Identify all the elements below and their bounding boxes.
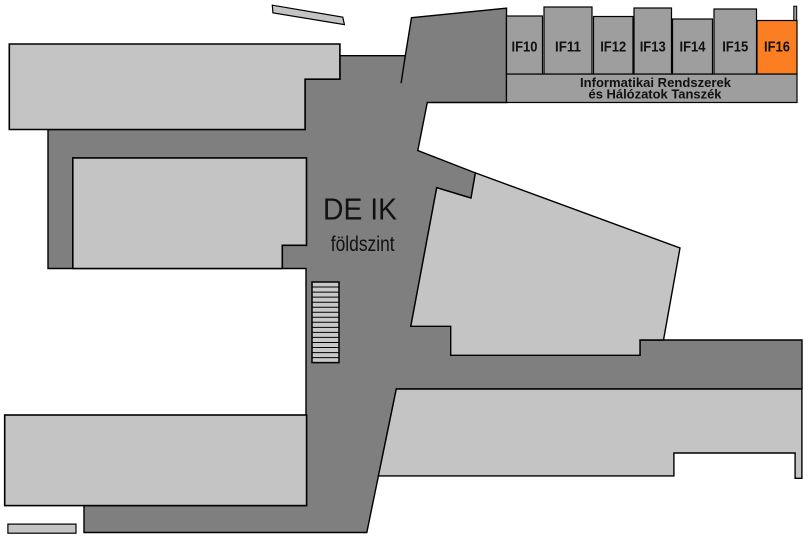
svg-text:és Hálózatok Tanszék: és Hálózatok Tanszék <box>589 87 723 102</box>
svg-text:DE IK: DE IK <box>323 193 397 227</box>
svg-text:földszint: földszint <box>331 233 395 256</box>
svg-text:IF14: IF14 <box>680 40 706 56</box>
svg-text:IF11: IF11 <box>555 40 581 56</box>
svg-text:IF10: IF10 <box>512 40 538 56</box>
svg-text:IF15: IF15 <box>722 40 748 56</box>
svg-text:IF12: IF12 <box>600 40 626 56</box>
svg-text:IF13: IF13 <box>640 40 666 56</box>
svg-text:IF16: IF16 <box>764 40 790 56</box>
